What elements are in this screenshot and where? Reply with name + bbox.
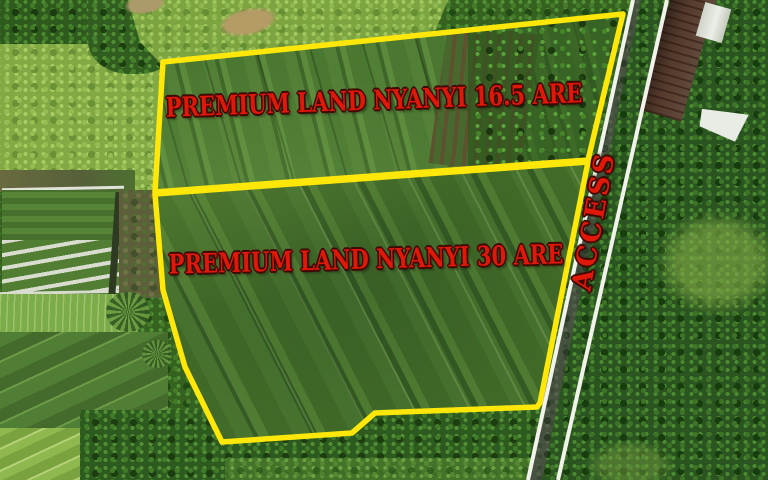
plot-boundary-bottom (155, 162, 588, 442)
boundary-overlay (0, 0, 768, 480)
aerial-site-photo: PREMIUM LAND NYANYI 16.5 ARE PREMIUM LAN… (0, 0, 768, 480)
